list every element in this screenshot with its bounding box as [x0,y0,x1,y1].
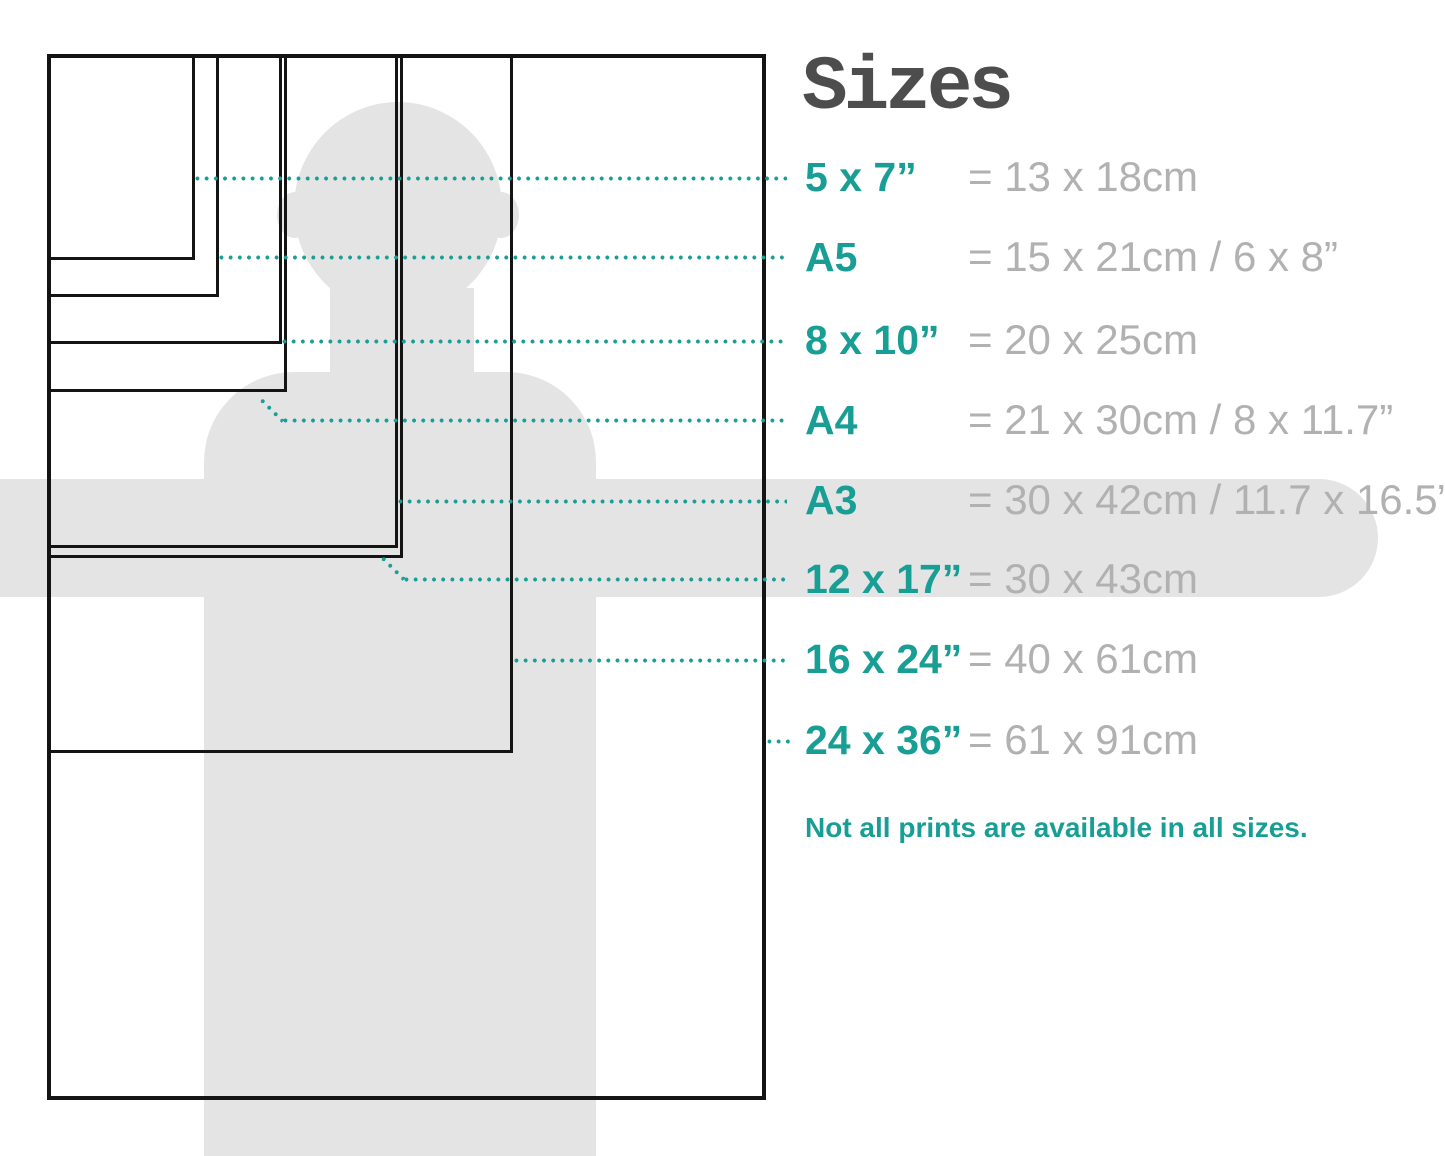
size-label: 16 x 24” [805,636,968,683]
leader-line-a5 [219,255,787,260]
size-label: 24 x 36” [805,717,968,764]
size-row-24x36: 24 x 36”= 61 x 91cm [805,716,1198,764]
size-row-8x10: 8 x 10”= 20 x 25cm [805,316,1198,364]
size-value: = 30 x 43cm [968,555,1198,602]
size-value: = 13 x 18cm [968,153,1198,200]
size-value: = 30 x 42cm / 11.7 x 16.5” [968,476,1445,523]
size-label: A4 [805,397,968,444]
size-label: 12 x 17” [805,556,968,603]
size-row-a4: A4= 21 x 30cm / 8 x 11.7” [805,396,1393,444]
size-value: = 20 x 25cm [968,316,1198,363]
size-value: = 15 x 21cm / 6 x 8” [968,233,1338,280]
size-label: 5 x 7” [805,154,968,201]
leader-line-a4 [283,418,787,423]
size-label: A3 [805,477,968,524]
size-box-5x7 [47,54,195,260]
size-value: = 61 x 91cm [968,716,1198,763]
leader-line-a3 [398,499,787,504]
size-label: A5 [805,234,968,281]
size-row-a3: A3= 30 x 42cm / 11.7 x 16.5” [805,476,1445,524]
size-row-5x7: 5 x 7”= 13 x 18cm [805,153,1198,201]
size-row-16x24: 16 x 24”= 40 x 61cm [805,635,1198,683]
size-row-12x17: 12 x 17”= 30 x 43cm [805,555,1198,603]
leader-line-16x24 [514,658,787,663]
page-title: Sizes [802,45,1010,131]
leader-line-12x17 [404,577,787,582]
leader-line-8x10 [282,339,787,344]
size-value: = 40 x 61cm [968,635,1198,682]
size-guide-diagram: Sizes 5 x 7”= 13 x 18cm A5= 15 x 21cm / … [0,0,1445,1156]
availability-note: Not all prints are available in all size… [805,812,1308,844]
size-label: 8 x 10” [805,317,968,364]
leader-line-24x36 [767,739,791,744]
size-row-a5: A5= 15 x 21cm / 6 x 8” [805,233,1338,281]
size-value: = 21 x 30cm / 8 x 11.7” [968,396,1393,443]
leader-line-5x7 [195,176,787,181]
